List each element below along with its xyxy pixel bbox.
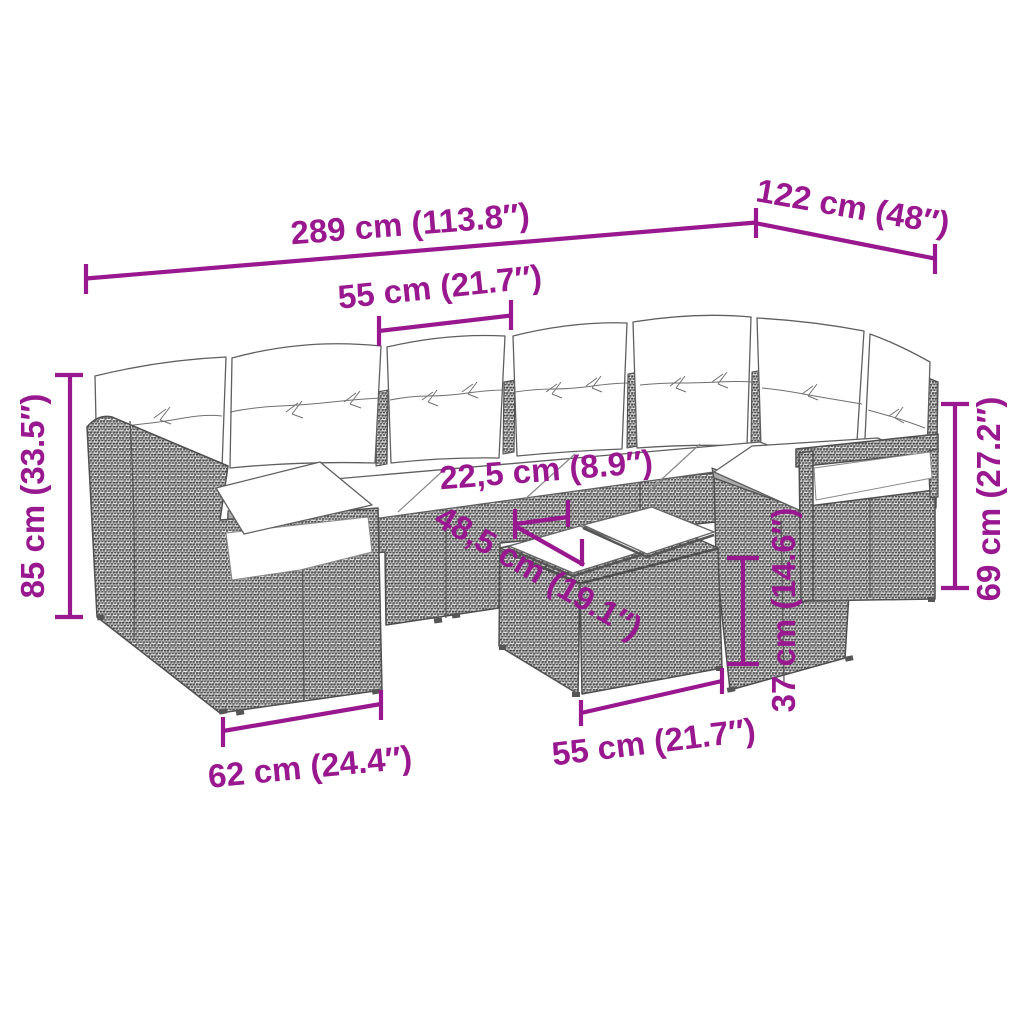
- svg-text:85 cm (33.5″): 85 cm (33.5″): [14, 394, 51, 599]
- svg-text:37 cm (14.6″): 37 cm (14.6″): [765, 508, 802, 713]
- svg-text:69 cm (27.2″): 69 cm (27.2″): [970, 397, 1007, 602]
